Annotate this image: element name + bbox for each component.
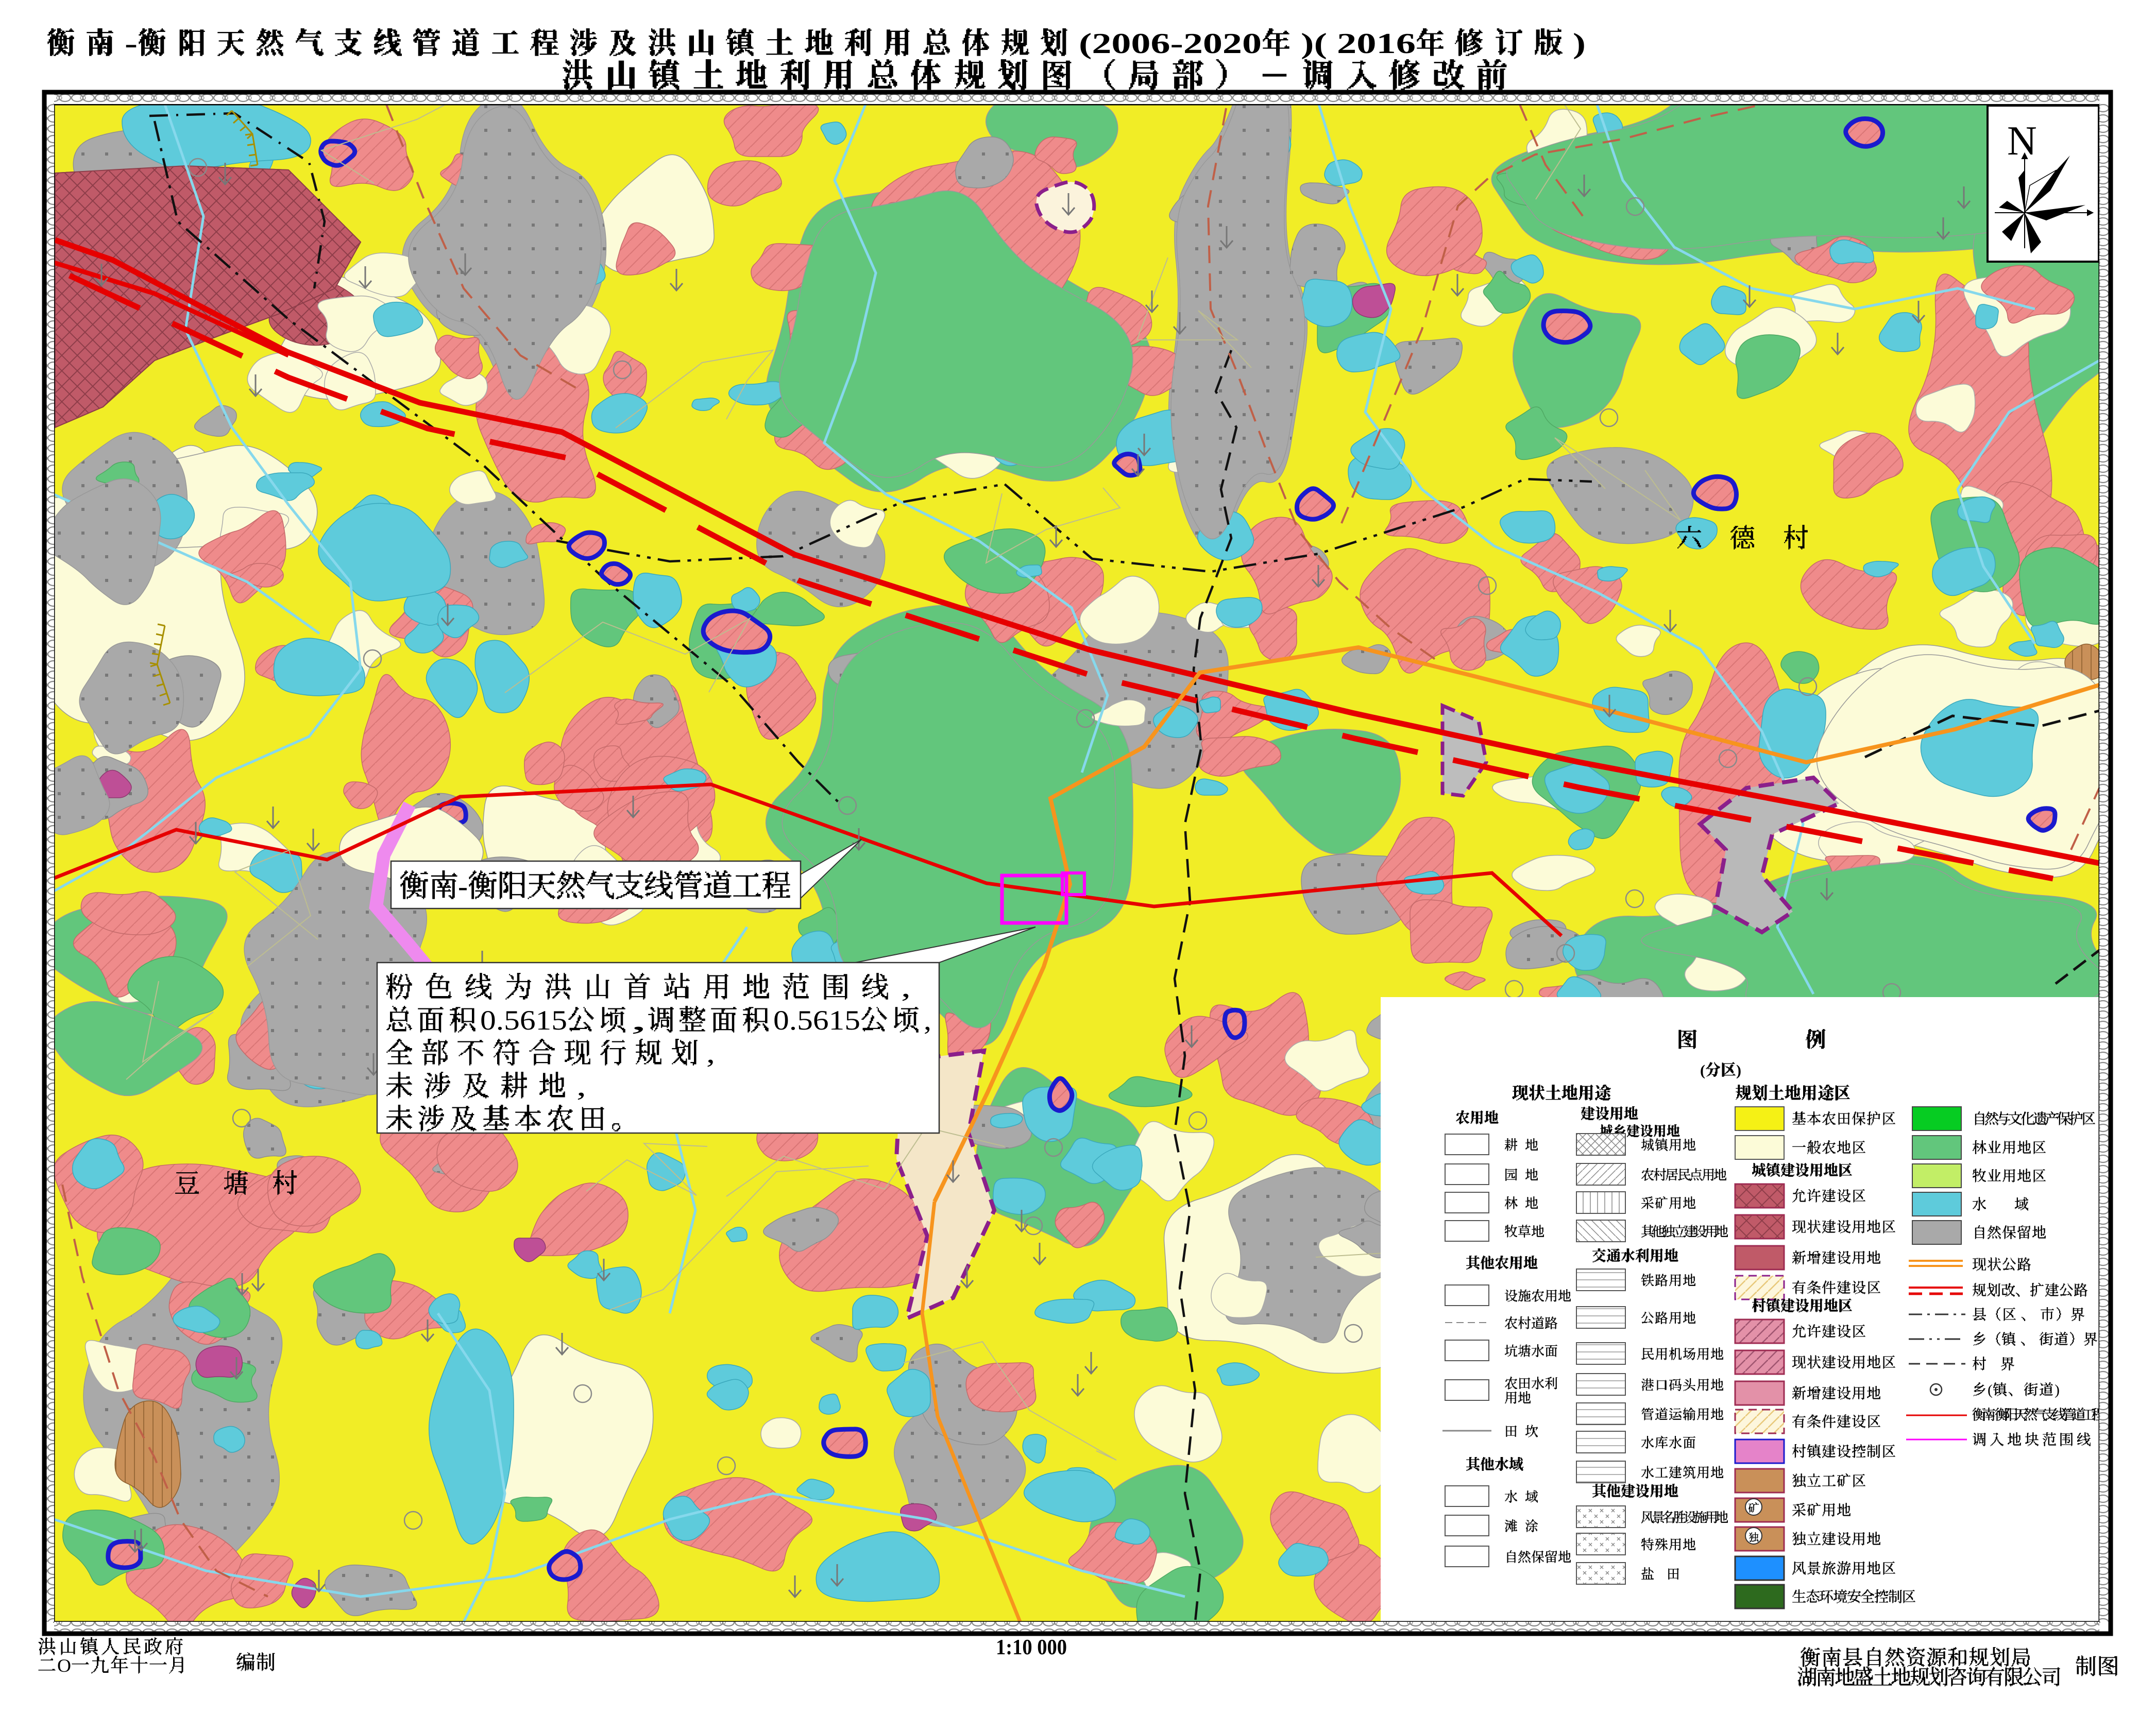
- svg-text:)( 2016: )( 2016: [1301, 28, 1416, 60]
- svg-text:-: -: [458, 869, 468, 903]
- svg-text:,: ,: [706, 1038, 715, 1069]
- svg-text:,: ,: [901, 972, 911, 1003]
- svg-text:): ): [2055, 1382, 2060, 1398]
- svg-text:(2006-2020: (2006-2020: [1079, 28, 1262, 60]
- svg-text:-: -: [1992, 1407, 1995, 1422]
- svg-text:0.5615: 0.5615: [480, 1005, 567, 1036]
- svg-text:N: N: [2007, 118, 2037, 164]
- svg-text:-: -: [125, 28, 138, 60]
- svg-text:(: (: [1700, 1062, 1705, 1079]
- svg-text:,: ,: [631, 1005, 647, 1036]
- svg-text:,: ,: [924, 1005, 931, 1036]
- svg-text:): ): [1573, 28, 1586, 60]
- svg-text:(: (: [1988, 1382, 1993, 1398]
- svg-text:0.5615: 0.5615: [773, 1005, 860, 1036]
- svg-text:): ): [1736, 1062, 1741, 1079]
- svg-text:,: ,: [576, 1071, 586, 1102]
- svg-text:O: O: [57, 1655, 71, 1676]
- svg-text:1:10 000: 1:10 000: [996, 1636, 1067, 1659]
